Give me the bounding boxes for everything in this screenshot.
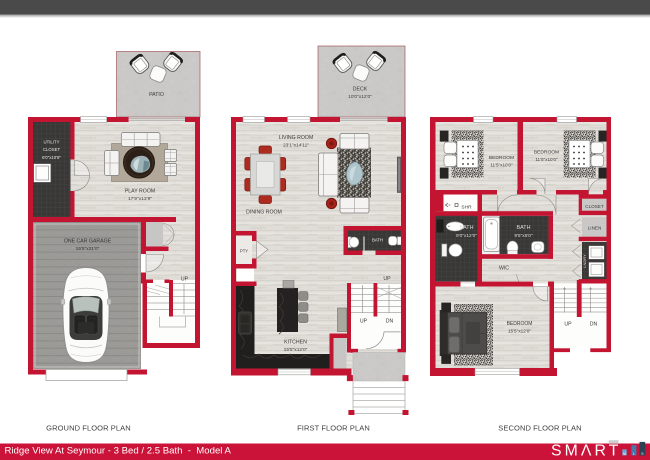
svg-text:BEDROOM: BEDROOM	[534, 150, 559, 156]
svg-text:PATIO: PATIO	[149, 92, 164, 98]
svg-text:LNDRY: LNDRY	[582, 254, 587, 268]
svg-text:FIRST FLOOR PLAN: FIRST FLOOR PLAN	[297, 424, 370, 433]
svg-text:GROUND FLOOR PLAN: GROUND FLOOR PLAN	[46, 424, 131, 433]
svg-text:UP: UP	[181, 277, 189, 283]
svg-text:LIVING ROOM: LIVING ROOM	[279, 135, 314, 141]
svg-text:UP: UP	[360, 319, 368, 325]
svg-text:DN: DN	[386, 319, 394, 325]
svg-text:WIC: WIC	[499, 266, 509, 272]
svg-text:DN: DN	[590, 322, 598, 328]
svg-text:DINING ROOM: DINING ROOM	[246, 210, 282, 216]
svg-text:17'9"x13'9": 17'9"x13'9"	[128, 196, 152, 202]
svg-text:11'5"x10'0": 11'5"x10'0"	[535, 157, 558, 162]
svg-text:BATH: BATH	[372, 238, 383, 243]
svg-text:6'0"x10'8": 6'0"x10'8"	[42, 155, 61, 160]
svg-text:23'1"x14'11": 23'1"x14'11"	[283, 143, 309, 149]
svg-text:15'5"x12'0": 15'5"x12'0"	[284, 347, 308, 353]
svg-text:DECK: DECK	[353, 87, 368, 93]
svg-text:PLAY ROOM: PLAY ROOM	[125, 189, 155, 195]
svg-text:PTY: PTY	[240, 249, 248, 254]
svg-text:SECOND FLOOR PLAN: SECOND FLOOR PLAN	[498, 424, 581, 433]
svg-text:9'5"x5'0": 9'5"x5'0"	[514, 233, 533, 239]
svg-text:9'0"x12'0": 9'0"x12'0"	[456, 233, 477, 239]
svg-text:UTILITY: UTILITY	[44, 140, 60, 145]
svg-text:UP: UP	[564, 322, 572, 328]
svg-text:10'0"x12'0": 10'0"x12'0"	[348, 94, 372, 100]
svg-text:11'5"x10'0": 11'5"x10'0"	[490, 163, 513, 168]
svg-text:SMΛRT: SMΛRT	[551, 443, 622, 460]
svg-text:LINEN: LINEN	[588, 226, 602, 231]
svg-text:Ridge View At Seymour - 3 Bed: Ridge View At Seymour - 3 Bed / 2.5 Bath…	[5, 446, 232, 457]
svg-text:CLOSET: CLOSET	[43, 147, 61, 152]
svg-text:BEDROOM: BEDROOM	[507, 321, 533, 327]
svg-text:ONE CAR GARAGE: ONE CAR GARAGE	[64, 239, 112, 245]
svg-text:UP: UP	[383, 276, 391, 282]
svg-text:BEDROOM: BEDROOM	[489, 155, 514, 161]
svg-text:KITCHEN: KITCHEN	[284, 340, 307, 346]
svg-text:SHR: SHR	[461, 205, 472, 211]
svg-text:CLOSET: CLOSET	[585, 204, 604, 209]
svg-text:M: M	[623, 452, 626, 456]
svg-text:15'5"x21'0": 15'5"x21'0"	[76, 246, 100, 252]
svg-text:L: L	[633, 452, 635, 456]
svg-text:BATH: BATH	[460, 225, 474, 231]
svg-text:BATH: BATH	[517, 225, 531, 231]
svg-text:15'5"x12'0": 15'5"x12'0"	[508, 329, 531, 334]
